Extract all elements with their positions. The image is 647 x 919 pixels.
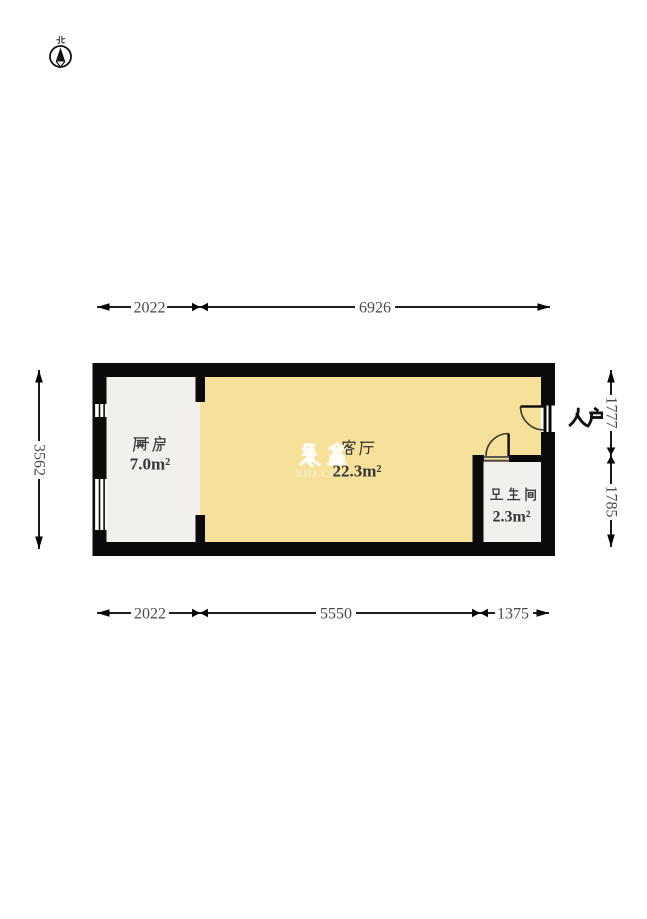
svg-text:2022: 2022 [134,606,166,623]
svg-text:2.3m²: 2.3m² [492,509,530,526]
svg-text:22.3m²: 22.3m² [332,462,381,481]
svg-text:1375: 1375 [497,606,529,623]
svg-text:1785: 1785 [603,486,620,518]
svg-text:6926: 6926 [359,300,391,317]
svg-text:2022: 2022 [134,300,166,317]
svg-text:1777: 1777 [603,397,620,429]
svg-text:5550: 5550 [320,606,352,623]
svg-text:3562: 3562 [31,444,48,476]
svg-text:7.0m²: 7.0m² [130,455,171,474]
